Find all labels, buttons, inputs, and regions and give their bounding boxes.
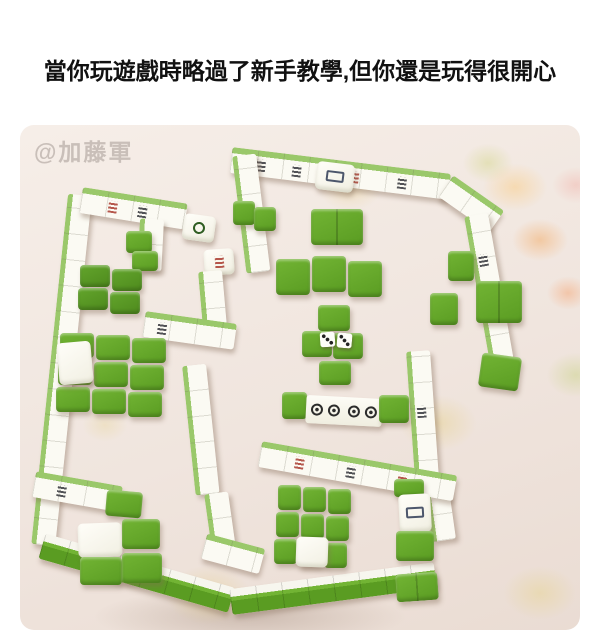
green-tile [132,251,158,271]
tile-glyph-black [345,465,356,478]
pip-glyph [311,403,324,416]
mahjong-tile-flat [295,536,328,567]
green-tile [430,293,458,325]
mahjong-maze [20,125,580,630]
tile-glyph-black [478,254,489,267]
pip-glyph [328,404,341,417]
green-tile [276,259,310,295]
green-tile [326,516,349,541]
die [319,331,335,347]
green-tile [312,256,346,292]
green-tile [276,512,299,537]
green-tile [278,485,301,510]
tile-glyph-red [107,200,118,213]
green-tile [92,389,126,414]
mahjong-tile-flat [77,522,122,558]
green-tile [396,531,434,561]
green-tile [110,292,140,314]
green-tile [303,487,326,512]
green-tile [301,514,324,539]
green-tile [94,362,128,387]
tile-glyph-red [215,256,225,269]
green-tile [105,489,143,518]
mahjong-tile-flat [398,493,432,533]
rect-glyph [406,507,425,519]
green-tile [254,207,276,231]
green-tile [318,305,350,331]
mahjong-tile-circle [181,213,216,243]
mahjong-tile-flat [314,161,355,193]
green-tile [56,387,90,412]
green-tile [80,265,110,287]
maze-wall-top-left [79,187,188,229]
green-tile [126,231,152,253]
green-tile [122,553,162,583]
green-tile [319,361,351,385]
die [336,332,352,348]
green-tile [328,489,351,514]
pip-glyph [348,405,361,418]
green-tile-pair [311,209,363,245]
tile-glyph-black [291,165,301,178]
meme-caption: 當你玩遊戲時略過了新手教學,但你還是玩得很開心 [0,52,600,86]
green-tile-pair [476,281,522,323]
green-tile [132,338,166,363]
maze-wall-center-foot [201,533,266,574]
pip-glyph [365,406,378,419]
rect-glyph [325,170,344,183]
green-tile [112,269,142,291]
tile-glyph-black [157,322,168,335]
green-tile [130,365,164,390]
circle-pip-tiles [305,395,382,427]
green-tile [128,392,162,417]
green-tile [348,261,382,297]
green-tile [80,557,122,585]
green-tile [78,288,108,310]
green-tile [478,352,522,391]
green-tile-pair [395,572,439,603]
green-tile [448,251,474,281]
tile-glyph-black [397,177,407,190]
mahjong-maze-photo: @加藤軍 [20,125,580,630]
watermark: @加藤軍 [34,133,133,167]
green-tile [233,201,255,225]
green-tile [379,395,409,423]
green-tile [122,519,160,549]
green-tile [96,335,130,360]
tile-glyph-black [417,406,427,419]
green-tile [282,392,307,419]
tile-glyph-black [56,484,67,497]
tile-glyph-red [294,456,305,469]
mahjong-tile-flat [56,341,94,386]
tile-glyph-black [137,205,148,218]
maze-wall-center-mid [182,364,219,496]
circle-glyph [192,221,206,235]
green-tile [274,539,297,564]
